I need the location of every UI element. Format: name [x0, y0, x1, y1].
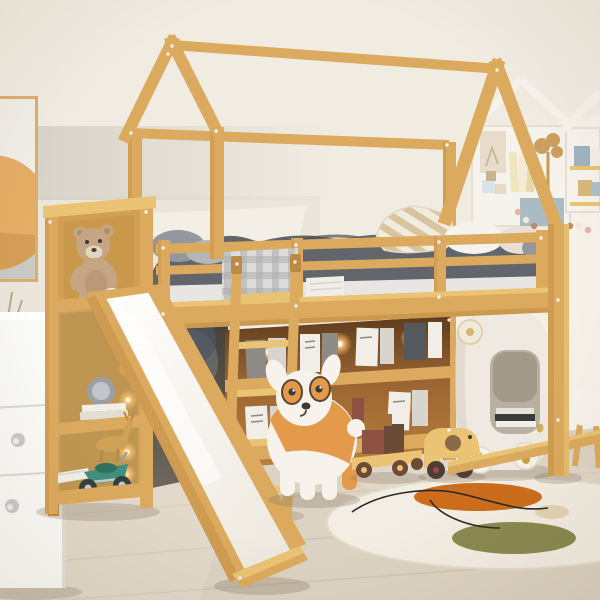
kids-room-product-photo: Kids bedroom product photo: natural wood…	[0, 0, 600, 600]
scene-illustration: Kids bedroom product photo: natural wood…	[0, 0, 600, 600]
vignette-overlay	[0, 0, 600, 600]
